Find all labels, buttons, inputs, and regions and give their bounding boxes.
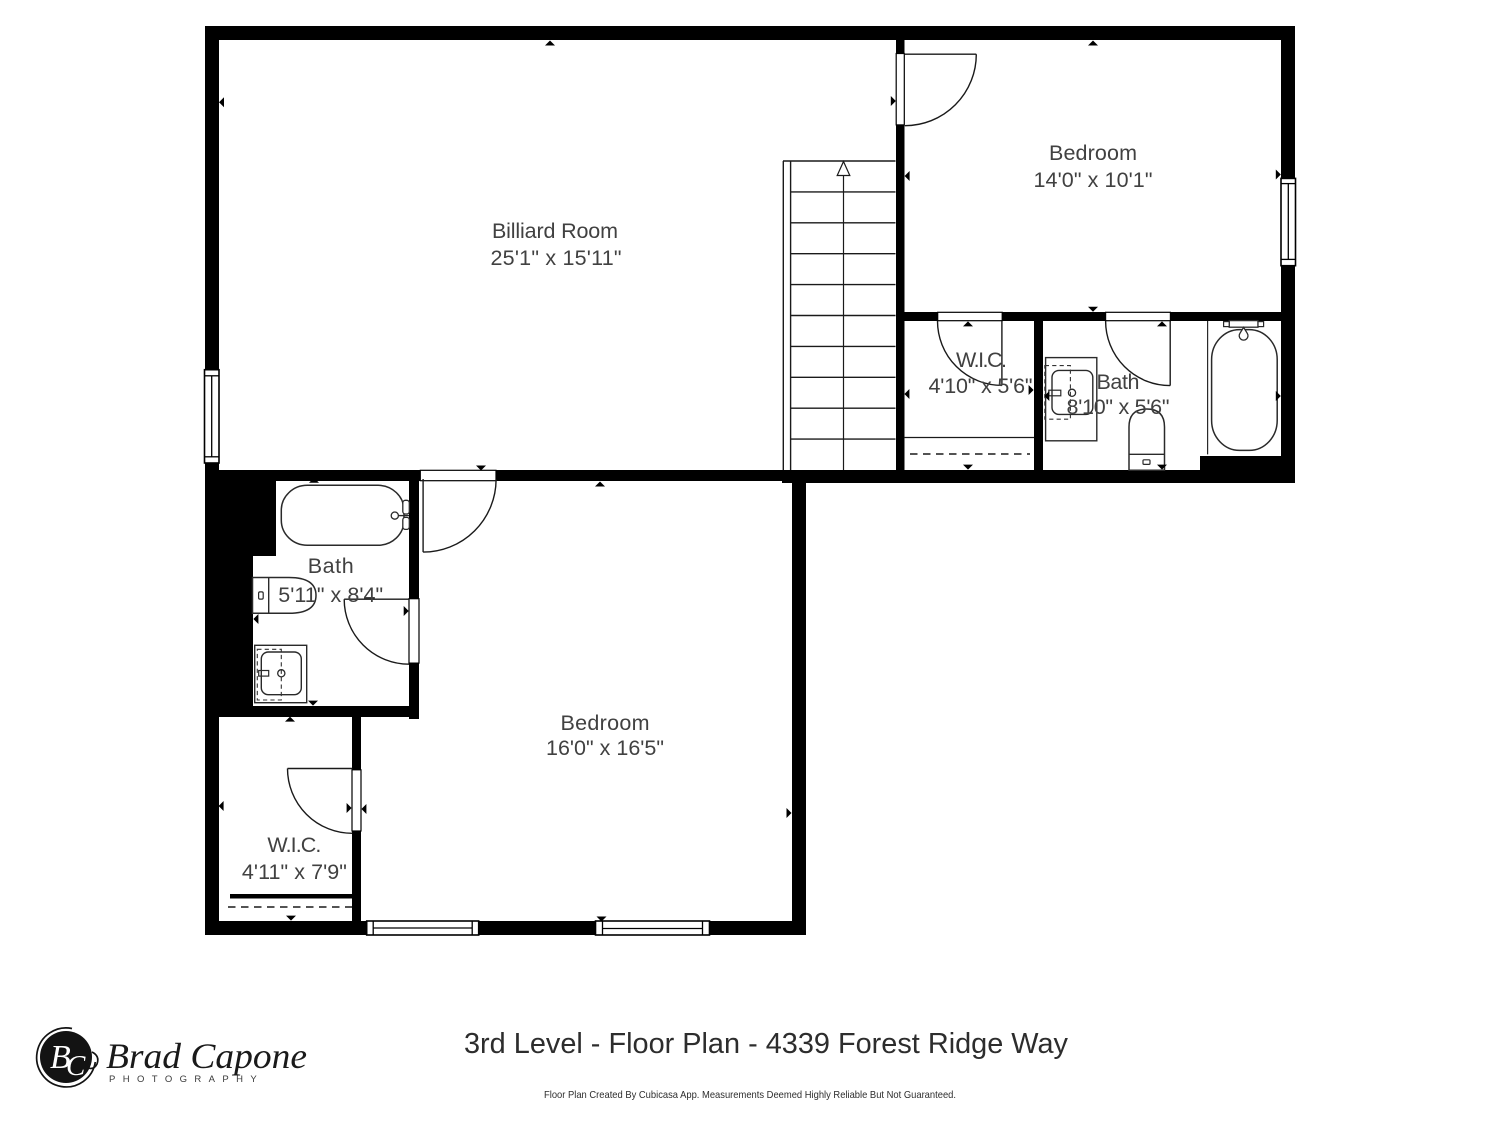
svg-text:Bath: Bath <box>1097 370 1140 394</box>
svg-text:C: C <box>66 1050 86 1082</box>
svg-text:25'1" x 15'11": 25'1" x 15'11" <box>491 246 622 270</box>
svg-text:Bath: Bath <box>308 554 354 578</box>
svg-text:3rd Level - Floor Plan - 4339: 3rd Level - Floor Plan - 4339 Forest Rid… <box>464 1028 1068 1060</box>
svg-text:14'0" x 10'1": 14'0" x 10'1" <box>1034 168 1153 192</box>
svg-text:4'11" x 7'9": 4'11" x 7'9" <box>242 860 347 884</box>
svg-text:4'10" x 5'6": 4'10" x 5'6" <box>929 374 1033 398</box>
svg-text:PHOTOGRAPHY: PHOTOGRAPHY <box>109 1074 264 1085</box>
svg-text:Bedroom: Bedroom <box>1049 141 1137 165</box>
svg-text:Billiard Room: Billiard Room <box>492 219 618 243</box>
svg-text:8'10" x 5'6": 8'10" x 5'6" <box>1067 395 1170 419</box>
svg-text:16'0" x 16'5": 16'0" x 16'5" <box>546 736 664 760</box>
svg-text:W.I.C.: W.I.C. <box>956 348 1007 372</box>
svg-text:5'11" x 8'4": 5'11" x 8'4" <box>278 583 383 607</box>
svg-text:Brad Capone: Brad Capone <box>106 1036 307 1076</box>
svg-text:W.I.C.: W.I.C. <box>267 833 321 857</box>
svg-text:Floor Plan Created By Cubicasa: Floor Plan Created By Cubicasa App. Meas… <box>544 1090 956 1101</box>
svg-text:Bedroom: Bedroom <box>561 711 650 735</box>
